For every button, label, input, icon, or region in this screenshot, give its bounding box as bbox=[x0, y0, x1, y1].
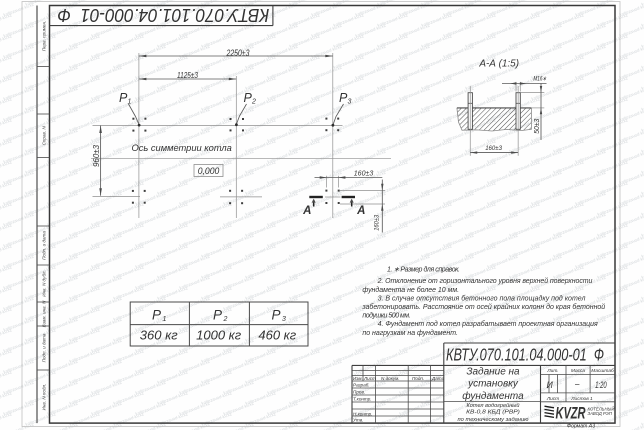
svg-text:ЗАВОД РЭП: ЗАВОД РЭП bbox=[588, 411, 613, 416]
svg-text:360 кг: 360 кг bbox=[140, 328, 178, 343]
svg-text:А: А bbox=[356, 205, 365, 217]
svg-text:KVZR: KVZR bbox=[556, 403, 586, 422]
svg-text:160±3: 160±3 bbox=[374, 215, 381, 231]
svg-text:160±3: 160±3 bbox=[485, 145, 502, 152]
svg-text:960±3: 960±3 bbox=[92, 144, 101, 167]
svg-text:kotlozavod-kv.kz: kotlozavod-kv.kz bbox=[0, 0, 13, 7]
svg-text:Пров.: Пров. bbox=[353, 390, 365, 395]
svg-text:kotlozavod-kv.kz: kotlozavod-kv.kz bbox=[0, 390, 13, 406]
svg-text:Р: Р bbox=[213, 308, 222, 323]
svg-text:3: 3 bbox=[348, 99, 352, 106]
svg-text:1000 кг: 1000 кг bbox=[196, 328, 242, 343]
svg-text:kotlozavod-kv.kz: kotlozavod-kv.kz bbox=[0, 33, 13, 49]
svg-text:kotlozavod-kv.kz: kotlozavod-kv.kz bbox=[0, 411, 13, 427]
svg-text:1: 1 bbox=[128, 99, 132, 106]
svg-text:kotlozavod-kv.kz: kotlozavod-kv.kz bbox=[0, 243, 13, 259]
svg-text:3: 3 bbox=[282, 316, 286, 323]
svg-text:kotlozavod-kv.kz: kotlozavod-kv.kz bbox=[0, 222, 13, 238]
svg-text:1:20: 1:20 bbox=[595, 380, 607, 390]
svg-text:КВ-0,8 КБД (РВР): КВ-0,8 КБД (РВР) bbox=[466, 410, 520, 416]
svg-text:–: – bbox=[574, 380, 580, 389]
svg-text:М16∗: М16∗ bbox=[533, 76, 547, 83]
svg-text:Подп. и дата: Подп. и дата bbox=[42, 231, 47, 260]
svg-text:1: 1 bbox=[163, 316, 167, 323]
svg-text:Котел водогрейный: Котел водогрейный bbox=[467, 402, 521, 409]
svg-text:kotlozavod-kv.kz: kotlozavod-kv.kz bbox=[0, 201, 13, 217]
svg-text:по нагрузкам на фундамент.: по нагрузкам на фундамент. bbox=[362, 329, 458, 337]
svg-text:kotlozavod-kv.kz: kotlozavod-kv.kz bbox=[0, 96, 13, 112]
svg-text:подушки 500 мм.: подушки 500 мм. bbox=[362, 312, 410, 320]
svg-text:4. Фундамент под котел разраба: 4. Фундамент под котел разрабатывает про… bbox=[378, 320, 598, 328]
svg-text:Лист: Лист bbox=[363, 376, 376, 381]
svg-text:1125±3: 1125±3 bbox=[177, 70, 198, 80]
svg-text:N докум.: N докум. bbox=[381, 376, 400, 381]
svg-text:Инв. N дубл.: Инв. N дубл. bbox=[42, 270, 47, 297]
svg-text:КВТУ.070.101.04.000-01 Ф: КВТУ.070.101.04.000-01 Ф bbox=[57, 5, 269, 25]
svg-text:2: 2 bbox=[251, 99, 256, 106]
svg-text:kotlozavod-kv.kz: kotlozavod-kv.kz bbox=[0, 117, 13, 133]
svg-text:kotlozavod-kv.kz: kotlozavod-kv.kz bbox=[0, 54, 13, 70]
svg-text:Взам. инв. N: Взам. инв. N bbox=[42, 300, 47, 327]
svg-text:Р: Р bbox=[152, 308, 161, 323]
svg-text:Масса: Масса bbox=[571, 368, 586, 374]
svg-text:kotlozavod-kv.kz: kotlozavod-kv.kz bbox=[0, 285, 13, 301]
svg-text:И: И bbox=[547, 380, 554, 390]
svg-text:kotlozavod-kv.kz: kotlozavod-kv.kz bbox=[0, 12, 13, 28]
svg-text:1. ∗ Размер для справок.: 1. ∗ Размер для справок. bbox=[387, 266, 460, 274]
svg-text:Разраб.: Разраб. bbox=[353, 383, 370, 388]
svg-text:2. Отклонение от горизонтально: 2. Отклонение от горизонтального уровня … bbox=[377, 277, 593, 285]
svg-text:Листов 1: Листов 1 bbox=[570, 396, 593, 402]
svg-text:Дата: Дата bbox=[431, 376, 445, 381]
svg-text:Подп. и дата: Подп. и дата bbox=[42, 333, 47, 362]
svg-text:Утв.: Утв. bbox=[353, 418, 363, 423]
svg-text:КВТУ.070.101.04.000-01 Ф: КВТУ.070.101.04.000-01 Ф bbox=[446, 344, 604, 364]
svg-text:забетонировать. Расстояние от: забетонировать. Расстояние от осей крайн… bbox=[361, 303, 605, 311]
svg-text:Инв. N подл.: Инв. N подл. bbox=[42, 384, 47, 411]
svg-text:2250±3: 2250±3 bbox=[226, 48, 250, 58]
svg-text:Перв. примен.: Перв. примен. bbox=[42, 21, 47, 52]
svg-text:kotlozavod-kv.kz: kotlozavod-kv.kz bbox=[0, 138, 13, 154]
svg-text:0,000: 0,000 bbox=[198, 166, 220, 176]
svg-text:kotlozavod-kv.kz: kotlozavod-kv.kz bbox=[3, 422, 35, 430]
svg-text:3. В случае отсутствия бетонно: 3. В случае отсутствия бетонного пола пл… bbox=[378, 294, 586, 302]
svg-text:kotlozavod-kv.kz: kotlozavod-kv.kz bbox=[0, 159, 13, 175]
svg-text:Ось симметрии котла: Ось симметрии котла bbox=[132, 143, 232, 153]
svg-text:2: 2 bbox=[223, 316, 228, 323]
svg-text:Лит.: Лит. bbox=[546, 368, 558, 374]
svg-text:50±3: 50±3 bbox=[532, 119, 541, 134]
svg-text:kotlozavod-kv.kz: kotlozavod-kv.kz bbox=[0, 369, 13, 385]
svg-text:kotlozavod-kv.kz: kotlozavod-kv.kz bbox=[0, 348, 13, 364]
svg-text:Н.контр.: Н.контр. bbox=[353, 412, 372, 417]
svg-text:kotlozavod-kv.kz: kotlozavod-kv.kz bbox=[0, 264, 13, 280]
svg-text:А: А bbox=[302, 205, 311, 217]
svg-text:по техническому заданию: по техническому заданию bbox=[458, 417, 530, 423]
svg-text:460 кг: 460 кг bbox=[258, 328, 296, 343]
svg-text:Р: Р bbox=[271, 308, 280, 323]
svg-text:160±3: 160±3 bbox=[354, 169, 374, 178]
svg-text:Т.контр.: Т.контр. bbox=[353, 397, 372, 402]
svg-text:фундамента не более 10 мм.: фундамента не более 10 мм. bbox=[362, 286, 459, 294]
svg-text:Подп.: Подп. bbox=[412, 376, 424, 381]
svg-text:kotlozavod-kv.kz: kotlozavod-kv.kz bbox=[0, 306, 13, 322]
svg-text:Справ. N: Справ. N bbox=[42, 126, 47, 146]
svg-text:установку: установку bbox=[467, 379, 519, 390]
svg-text:Изм.: Изм. bbox=[353, 376, 363, 381]
svg-text:Формат А3: Формат А3 bbox=[567, 424, 596, 430]
svg-text:kotlozavod-kv.kz: kotlozavod-kv.kz bbox=[0, 75, 13, 91]
svg-text:Масштаб: Масштаб bbox=[591, 368, 614, 374]
svg-text:фундамента: фундамента bbox=[462, 390, 524, 402]
svg-text:А-А (1:5): А-А (1:5) bbox=[478, 58, 519, 70]
svg-text:Лист: Лист bbox=[546, 396, 559, 402]
svg-text:kotlozavod-kv.kz: kotlozavod-kv.kz bbox=[0, 180, 13, 196]
svg-text:kotlozavod-kv.kz: kotlozavod-kv.kz bbox=[0, 327, 13, 343]
svg-text:Задание на: Задание на bbox=[466, 367, 520, 378]
